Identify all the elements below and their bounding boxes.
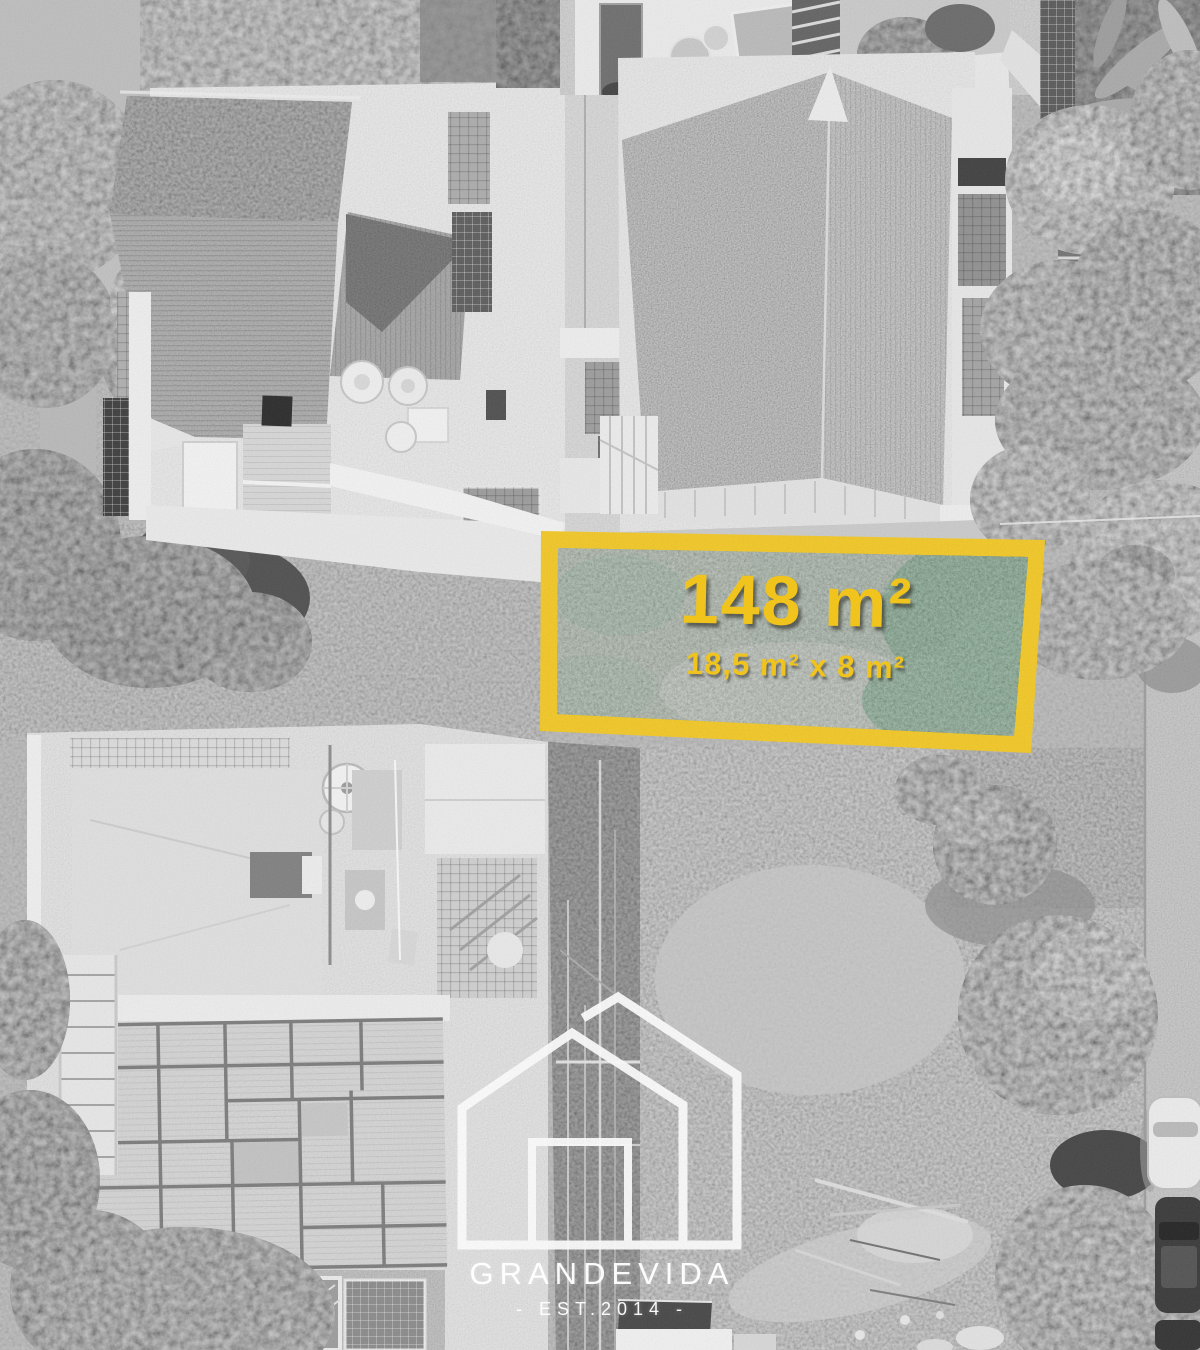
aerial-photo <box>0 0 1200 1350</box>
photo-grain-overlay <box>0 0 1200 1350</box>
aerial-listing-image: 148 m² 18,5 m² x 8 m² GRANDEVIDA - EST.2… <box>0 0 1200 1350</box>
